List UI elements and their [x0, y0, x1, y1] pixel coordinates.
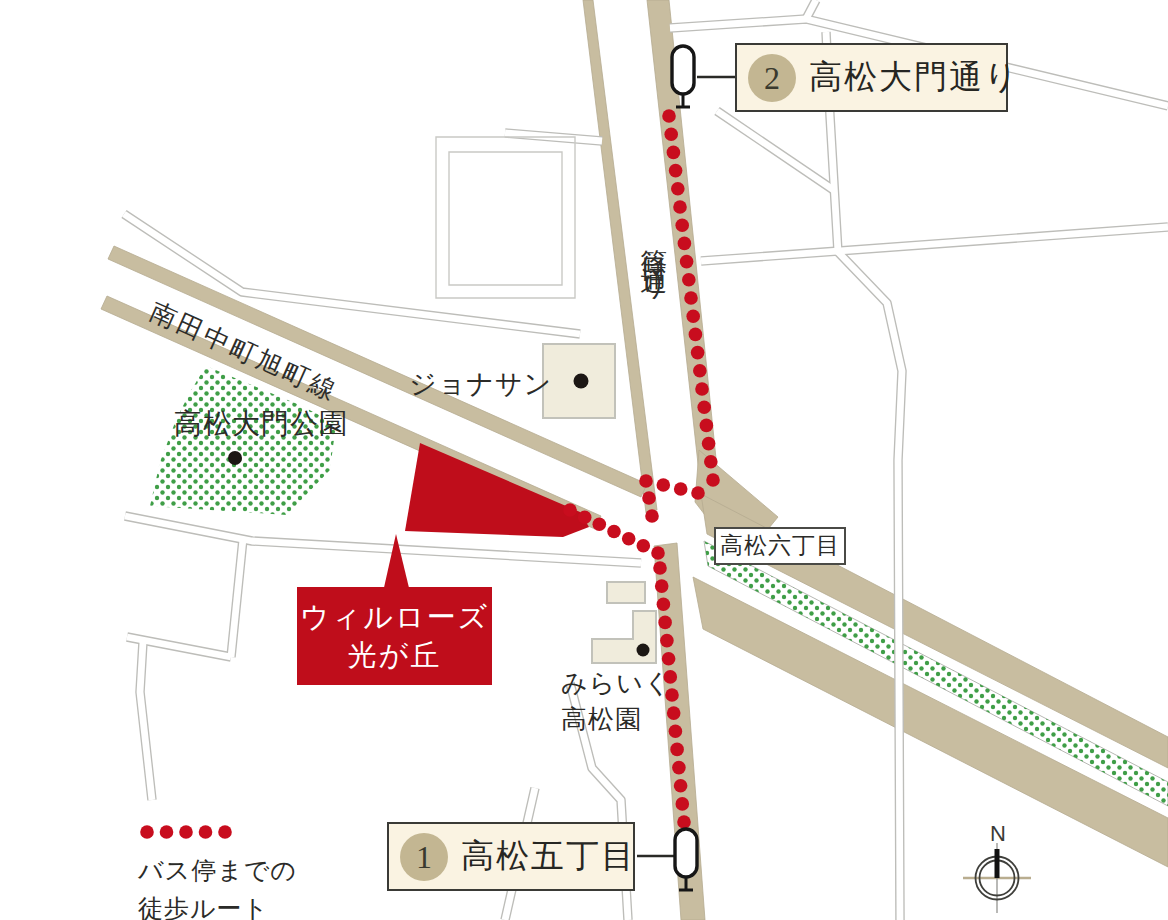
property-name-line2: 光が丘	[348, 636, 442, 674]
park-poi-dot	[228, 451, 242, 465]
compass-north-label: N	[984, 820, 1012, 848]
bus-stop-2-name: 高松大門通り	[809, 57, 1020, 98]
parcel-inner	[449, 152, 562, 285]
nursery-label: みらいく 高松園	[561, 666, 671, 738]
parcel-outer	[436, 137, 575, 298]
legend-caption: バス停までの 徒歩ルート	[138, 852, 297, 920]
property-callout: ウィルローズ 光が丘	[297, 587, 492, 685]
nursery-poi-dot	[637, 644, 650, 657]
legend-route-dots	[140, 825, 232, 839]
restaurant-poi-dot	[574, 374, 589, 389]
boulevard-median-greenery	[704, 541, 1168, 806]
restaurant-label: ジョナサン	[409, 368, 552, 402]
bus-stop-1-number-badge: 1	[400, 833, 448, 881]
compass-icon	[963, 843, 1031, 913]
nursery-label-line2: 高松園	[561, 702, 671, 738]
legend-caption-line2: 徒歩ルート	[138, 890, 297, 920]
access-map: 篠目通り 南田中町旭町線 高松大門公園 ジョナサン みらいく 高松園 高松六丁目…	[0, 0, 1168, 920]
bus-stop-2-number-badge: 2	[748, 54, 796, 102]
bus-stop-1-name: 高松五丁目	[461, 836, 636, 877]
nursery-label-line1: みらいく	[561, 666, 671, 702]
property-name-line1: ウィルローズ	[300, 598, 489, 636]
map-graphics	[0, 0, 1168, 920]
nursery-building-small	[607, 582, 645, 603]
bus-stop-label-2: 2 高松大門通り	[735, 43, 1008, 112]
bus-stop-label-1: 1 高松五丁目	[387, 822, 635, 891]
park-label: 高松大門公園	[174, 406, 348, 441]
street-label-shinome: 篠目通り	[636, 228, 670, 295]
callout-pointer	[383, 534, 410, 592]
parcel-outlines	[436, 137, 575, 298]
legend-caption-line1: バス停までの	[138, 852, 297, 890]
district-label-box: 高松六丁目	[714, 527, 846, 565]
